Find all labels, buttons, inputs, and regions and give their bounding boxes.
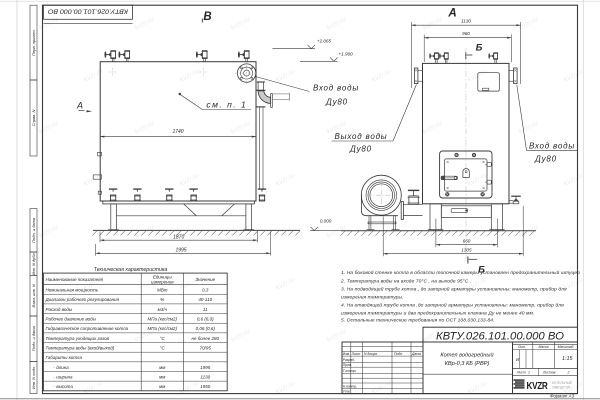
svg-text:Инв. N подл.: Инв. N подл. xyxy=(31,366,36,389)
svg-text:0.000: 0.000 xyxy=(320,218,332,223)
svg-text:5. Остальные технические треб: 5. Остальные технические требования по О… xyxy=(341,318,495,324)
svg-text:kvzr.ru: kvzr.ru xyxy=(326,16,348,32)
svg-text:40-110: 40-110 xyxy=(198,297,212,302)
svg-text:°С: °С xyxy=(160,336,166,341)
svg-text:0,6 (6,0): 0,6 (6,0) xyxy=(197,317,214,322)
svg-text:kvzr.ru: kvzr.ru xyxy=(467,172,489,188)
svg-text:kvzr.ru: kvzr.ru xyxy=(230,120,252,136)
svg-text:И: И xyxy=(516,357,520,363)
svg-text:измерения: измерения xyxy=(151,279,174,284)
svg-text:1740: 1740 xyxy=(172,129,183,135)
svg-text:kvzr.ru: kvzr.ru xyxy=(179,172,201,188)
svg-text:Инв. N дубл.: Инв. N дубл. xyxy=(31,252,36,275)
svg-text:kvzr.ru: kvzr.ru xyxy=(371,68,393,84)
svg-text:kvzr.ru: kvzr.ru xyxy=(230,328,252,344)
svg-text:kvzr.ru: kvzr.ru xyxy=(422,224,444,240)
svg-text:kvzr.ru: kvzr.ru xyxy=(83,68,105,84)
svg-text:3. На подводящей трубе котла: 3. На подводящей трубе котла , до запорн… xyxy=(341,286,567,293)
svg-text:660: 660 xyxy=(463,239,471,244)
svg-text:Лит.: Лит. xyxy=(517,345,526,349)
svg-text:Ду80: Ду80 xyxy=(349,145,372,154)
svg-text:kvzr.ru: kvzr.ru xyxy=(563,68,585,84)
svg-text:kvzr.ru: kvzr.ru xyxy=(275,68,297,84)
svg-text:Масса: Масса xyxy=(538,345,548,349)
svg-text:kvzr.ru: kvzr.ru xyxy=(275,172,297,188)
svg-text:70/95: 70/95 xyxy=(200,346,212,351)
svg-text:2: 2 xyxy=(567,371,570,375)
svg-text:%: % xyxy=(160,297,164,302)
svg-text:мм: мм xyxy=(159,384,165,389)
svg-text:kvzr.ru: kvzr.ru xyxy=(230,224,252,240)
svg-text:Утв.: Утв. xyxy=(343,389,351,393)
svg-text:КВТУ.026.101.00.000 ВО: КВТУ.026.101.00.000 ВО xyxy=(48,8,128,14)
svg-text:Изм.: Изм. xyxy=(343,352,350,356)
svg-text:960: 960 xyxy=(462,31,470,36)
svg-text:kvzr.ru: kvzr.ru xyxy=(563,172,585,188)
svg-text:Рабочее давление воды: Рабочее давление воды xyxy=(46,317,97,322)
svg-text:+1.900: +1.900 xyxy=(339,52,354,57)
svg-text:Расход воды: Расход воды xyxy=(46,307,73,312)
svg-text:МПа (кгс/см2): МПа (кгс/см2) xyxy=(148,326,178,331)
svg-text:kvzr.ru: kvzr.ru xyxy=(275,276,297,292)
svg-text:ЗАВОД РЭП: ЗАВОД РЭП xyxy=(552,385,571,389)
svg-text:Техническая характеристика: Техническая характеристика xyxy=(94,267,168,273)
svg-text:В: В xyxy=(203,11,211,23)
svg-text:kvzr.ru: kvzr.ru xyxy=(230,16,252,32)
svg-text:1995: 1995 xyxy=(175,247,186,253)
svg-text:Вход воды: Вход воды xyxy=(529,141,575,150)
svg-text:kvzr.ru: kvzr.ru xyxy=(422,16,444,32)
svg-text:1130: 1130 xyxy=(461,19,471,24)
svg-text:0,3: 0,3 xyxy=(202,288,209,293)
svg-text:kvzr.ru: kvzr.ru xyxy=(518,224,540,240)
svg-text:Н.контр.: Н.контр. xyxy=(343,384,357,388)
svg-text:Выход воды: Выход воды xyxy=(335,132,388,141)
svg-text:Разраб.: Разраб. xyxy=(343,358,355,362)
svg-text:kvzr.ru: kvzr.ru xyxy=(422,120,444,136)
svg-text:Лист: Лист xyxy=(351,352,361,356)
svg-text:Дата: Дата xyxy=(411,352,421,356)
svg-text:1130: 1130 xyxy=(200,374,210,379)
svg-text:1. На боковой стенке котла в: 1. На боковой стенке котла в области топ… xyxy=(341,269,580,276)
svg-text:1: 1 xyxy=(528,371,530,375)
svg-text:1995: 1995 xyxy=(200,365,211,370)
svg-text:- ширина: - ширина xyxy=(54,374,73,379)
svg-text:- длина: - длина xyxy=(54,365,70,370)
svg-text:2. Температура воды на входе: 2. Температура воды на входе 70°С , на в… xyxy=(340,278,471,284)
svg-text:kvzr.ru: kvzr.ru xyxy=(518,120,540,136)
svg-text:1:15: 1:15 xyxy=(562,356,573,362)
svg-text:N докум.: N докум. xyxy=(364,352,378,356)
svg-text:МПа (кгс/см2): МПа (кгс/см2) xyxy=(148,317,178,322)
svg-text:Ду80: Ду80 xyxy=(534,155,557,164)
svg-text:kvzr.ru: kvzr.ru xyxy=(83,172,105,188)
svg-text:1870: 1870 xyxy=(173,234,184,240)
svg-text:Температура воды (вход/выход): Температура воды (вход/выход) xyxy=(46,346,115,351)
svg-text:Масштаб: Масштаб xyxy=(558,345,574,349)
svg-text:1305: 1305 xyxy=(461,248,472,253)
svg-text:kvzr.ru: kvzr.ru xyxy=(326,328,348,344)
svg-text:Подп. и дата: Подп. и дата xyxy=(31,217,36,243)
svg-text:А: А xyxy=(447,8,456,20)
svg-text:0,06 (0,6): 0,06 (0,6) xyxy=(196,326,216,331)
svg-text:мм: мм xyxy=(159,374,165,379)
svg-text:Номинальная мощность: Номинальная мощность xyxy=(46,288,99,293)
svg-text:Гидравлическое сопротивление к: Гидравлическое сопротивление котла xyxy=(46,326,129,331)
svg-text:KVZR: KVZR xyxy=(527,380,549,392)
svg-text:Температура уходящих газов: Температура уходящих газов xyxy=(46,336,110,341)
svg-text:МВт: МВт xyxy=(157,288,168,293)
svg-text:Взам. инв. N: Взам. инв. N xyxy=(31,284,36,307)
svg-text:kvzr.ru: kvzr.ru xyxy=(134,120,156,136)
svg-text:см. п. 1: см. п. 1 xyxy=(206,99,247,109)
svg-text:Подп.: Подп. xyxy=(394,352,403,356)
svg-text:+2.065: +2.065 xyxy=(317,39,332,44)
svg-text:Наименование показателя: Наименование показателя xyxy=(46,277,104,282)
svg-text:Справ. N: Справ. N xyxy=(31,110,36,127)
svg-text:°С: °С xyxy=(160,346,166,351)
svg-text:Перв. примен.: Перв. примен. xyxy=(31,29,36,56)
svg-text:kvzr.ru: kvzr.ru xyxy=(518,16,540,32)
svg-text:Значение: Значение xyxy=(195,277,215,282)
svg-text:Т.контр.: Т.контр. xyxy=(343,369,357,373)
svg-text:Котел водогрейный: Котел водогрейный xyxy=(440,351,493,358)
svg-text:1950: 1950 xyxy=(200,384,211,389)
svg-text:КВр-0,3 КБ (РВР): КВр-0,3 КБ (РВР) xyxy=(445,361,490,367)
svg-text:м3/ч: м3/ч xyxy=(158,307,168,312)
svg-text:А: А xyxy=(76,101,83,111)
svg-text:Листов: Листов xyxy=(542,371,556,375)
svg-text:Габариты котла: Габариты котла xyxy=(46,355,83,360)
svg-text:11: 11 xyxy=(203,307,208,312)
svg-text:не более 280: не более 280 xyxy=(192,336,220,341)
svg-text:kvzr.ru: kvzr.ru xyxy=(38,224,60,240)
svg-text:kvzr.ru: kvzr.ru xyxy=(134,16,156,32)
svg-text:4. На отводящей трубе котла ,: 4. На отводящей трубе котла ,до запорной… xyxy=(341,302,564,309)
svg-text:измерения температуры и два пр: измерения температуры и два предохраните… xyxy=(341,310,534,316)
svg-text:kvzr.ru: kvzr.ru xyxy=(38,120,60,136)
svg-text:Формат А3: Формат А3 xyxy=(550,394,575,399)
svg-text:Пров.: Пров. xyxy=(343,363,352,367)
svg-text:КВТУ.026.101.00.000 ВО: КВТУ.026.101.00.000 ВО xyxy=(436,330,564,342)
svg-text:Диапазон рабочего регулировани: Диапазон рабочего регулирования xyxy=(45,297,120,302)
svg-text:измерения температуры.: измерения температуры. xyxy=(341,295,404,300)
svg-text:Б: Б xyxy=(476,43,483,54)
svg-text:Вход воды: Вход воды xyxy=(313,84,359,93)
svg-text:kvzr.ru: kvzr.ru xyxy=(179,68,201,84)
svg-text:Ду80: Ду80 xyxy=(325,98,348,107)
svg-text:Подп. и дата: Подп. и дата xyxy=(31,325,36,351)
svg-text:- высота: - высота xyxy=(54,384,74,389)
svg-text:Лист: Лист xyxy=(516,371,526,375)
svg-text:мм: мм xyxy=(159,365,165,370)
